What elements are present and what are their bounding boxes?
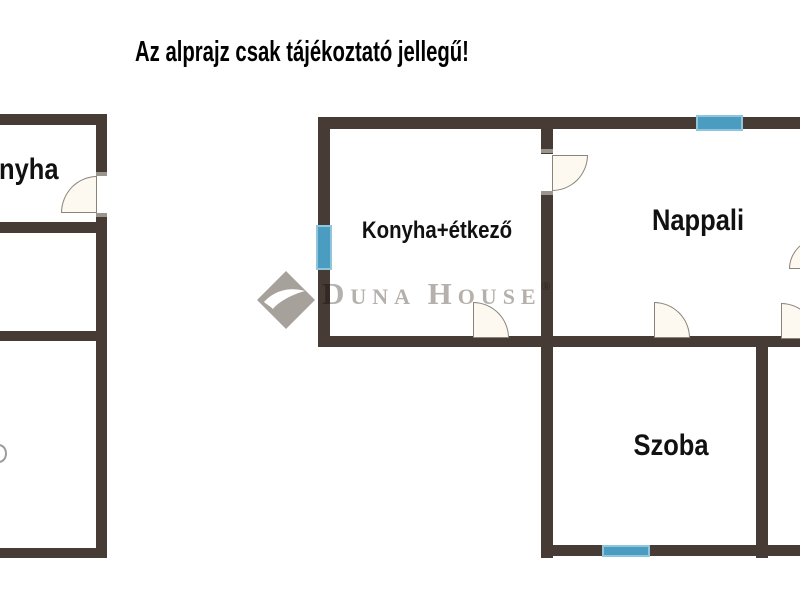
wall-left-interior-2 — [0, 331, 107, 341]
watermark-space — [416, 284, 428, 309]
room-label-bedroom: Szoba — [633, 431, 708, 461]
wall-left-right-lower — [96, 213, 107, 558]
wall-left-top — [0, 114, 107, 125]
wall-middle-vertical-lower — [541, 191, 553, 558]
room-label-kitchen-partial: nyha — [0, 155, 59, 185]
room-label-living: Nappali — [652, 206, 744, 236]
wall-left-interior-1 — [0, 222, 107, 233]
door-jamb — [541, 191, 553, 195]
door-swing-kitchen-living — [552, 155, 588, 191]
watermark-text: DUNA HOUSE® — [322, 278, 551, 309]
wall-right-left-upper — [318, 117, 330, 225]
wall-left-right-upper — [96, 114, 107, 176]
door-jamb — [96, 172, 107, 176]
window-left — [316, 225, 332, 270]
cropped-room-label-fragment — [0, 444, 7, 463]
door-swing-left-unit — [61, 176, 97, 213]
door-swing-living-bedroom — [654, 302, 690, 338]
wall-middle-horizontal — [318, 336, 800, 347]
wall-bedroom-right — [756, 336, 768, 558]
door-swing-right-cropped — [781, 303, 800, 339]
door-swing-kitchen-entry — [473, 302, 509, 338]
duna-house-diamond-logo — [251, 264, 321, 334]
duna-house-watermark: DUNA HOUSE® — [251, 264, 671, 336]
window-top — [696, 115, 743, 131]
page-title: Az alprajz csak tájékoztató jellegű! — [135, 38, 469, 67]
watermark-letters: OUSE — [458, 284, 542, 309]
watermark-letter: H — [428, 276, 458, 311]
door-jamb — [541, 149, 553, 153]
door-jamb — [96, 213, 107, 217]
watermark-letters: UNA — [350, 284, 416, 309]
wall-left-bottom — [0, 548, 107, 558]
room-label-kitchen-dining: Konyha+étkező — [362, 219, 512, 243]
floorplan-page: { "title": { "text": "Az alprajz csak tá… — [0, 0, 800, 600]
wall-right-bottom — [541, 545, 800, 556]
door-swing-right-wall-fragment — [789, 238, 800, 269]
window-bottom — [602, 545, 650, 557]
